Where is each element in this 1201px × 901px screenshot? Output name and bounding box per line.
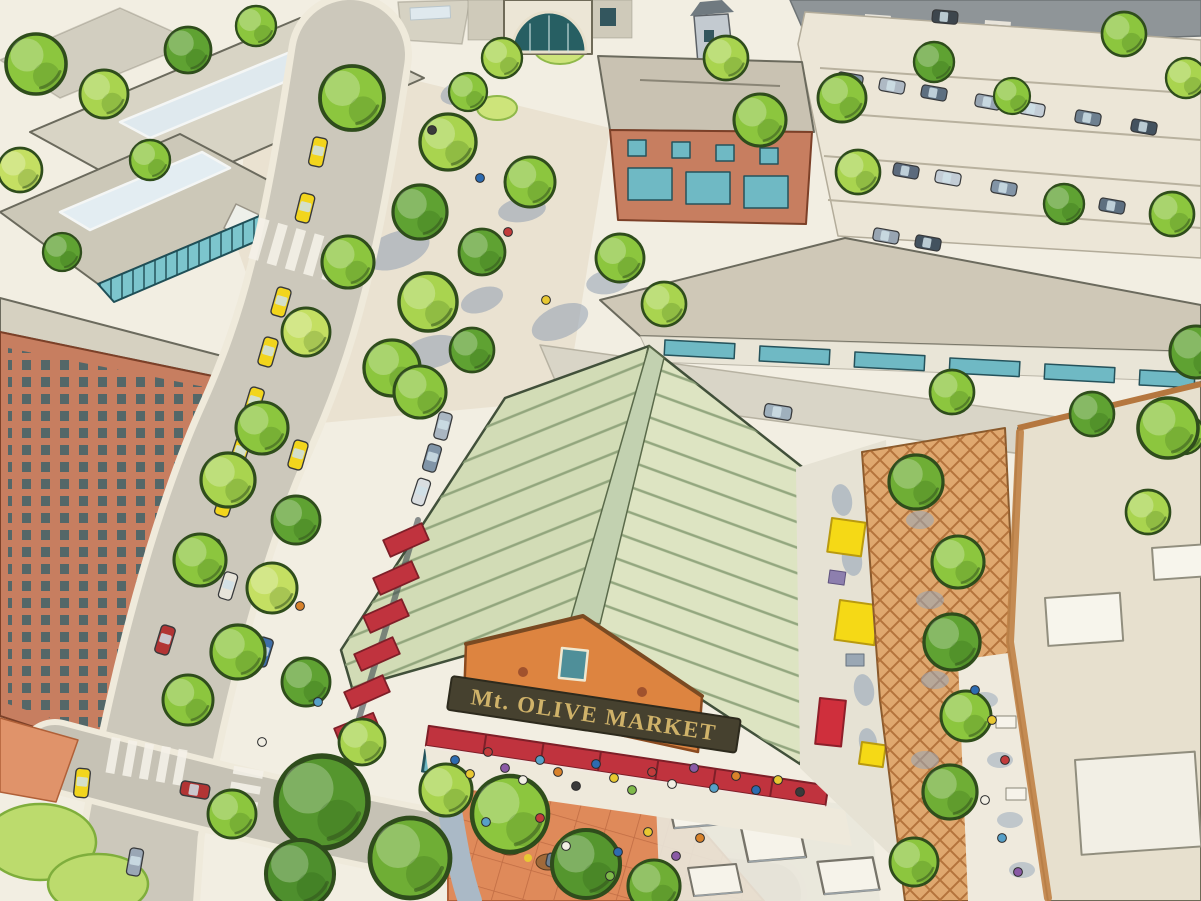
skylight bbox=[1075, 752, 1201, 855]
skylight bbox=[1152, 544, 1201, 580]
rendering-canvas: Mt. OLIVE MARKET bbox=[0, 0, 1201, 901]
brick-apartment-building bbox=[598, 56, 814, 224]
right-building bbox=[1008, 382, 1201, 901]
aerial-rendering-town-center: Mt. OLIVE MARKET bbox=[0, 0, 1201, 901]
gable-window bbox=[559, 648, 588, 681]
red-umbrella bbox=[815, 698, 846, 746]
yellow-umbrella bbox=[827, 518, 865, 556]
skylight bbox=[1045, 593, 1123, 646]
yellow-umbrella bbox=[859, 742, 886, 767]
